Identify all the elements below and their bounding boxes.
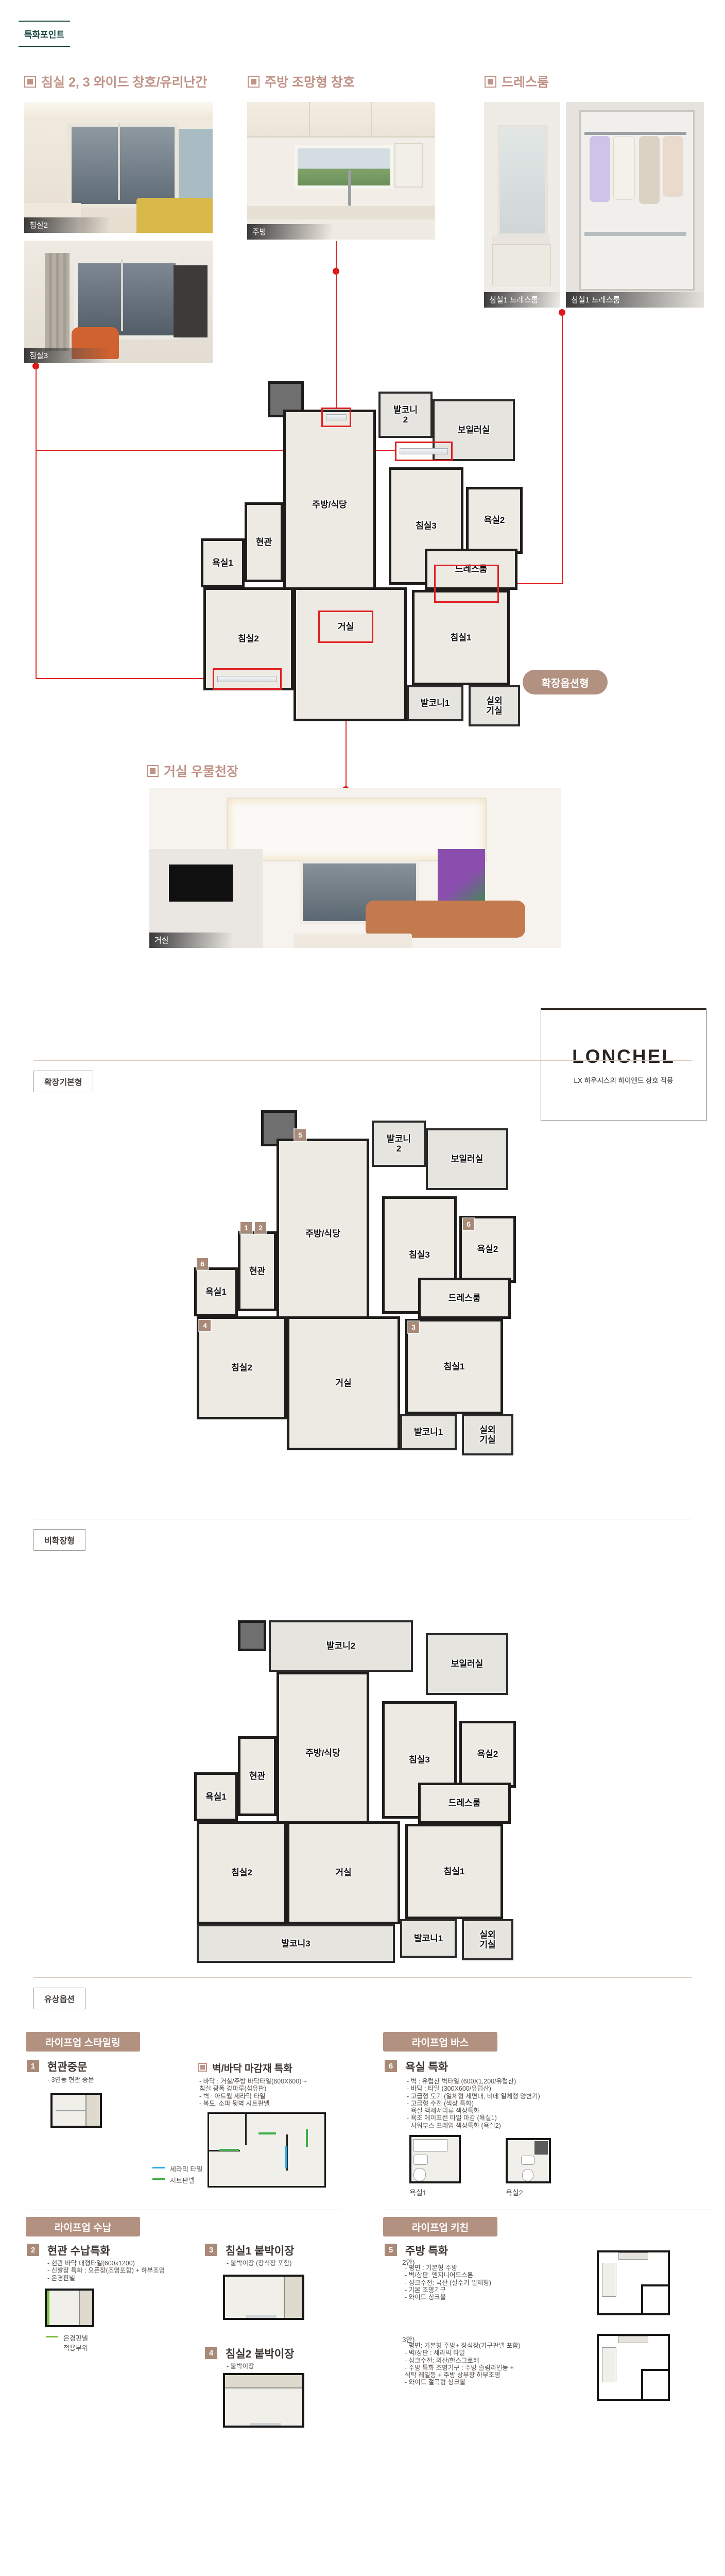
room-balcony2: 발코니2	[378, 392, 433, 438]
room-balcony1: 발코니1	[400, 1919, 457, 1958]
option-number-5: 5	[385, 2244, 397, 2256]
room-outdoor-unit: 실외기실	[462, 1919, 513, 1960]
diagram-wardrobe-band	[225, 2375, 302, 2388]
room-balcony2: 발코니2	[269, 1620, 413, 1672]
photo-caption: 침실1 드레스룸	[484, 292, 560, 308]
diagram-l-notch	[641, 2369, 670, 2401]
window-graphic	[400, 448, 448, 454]
room-balcony1: 발코니1	[407, 685, 463, 721]
diagram-bed2-wardrobe	[223, 2373, 304, 2428]
diagram-counter	[602, 2263, 616, 2297]
diagram-door-line	[56, 2110, 85, 2111]
room-kitchen: 주방/식당	[277, 1139, 369, 1329]
photo-decor-sofa	[366, 901, 525, 938]
highlight-living-label: 거실	[318, 611, 373, 643]
legend-ceramic-tile: 세라믹 타일	[152, 2164, 202, 2174]
option-bullets-door: - 3연동 현관 중문	[47, 2076, 94, 2083]
photo-caption: 침실3	[24, 348, 109, 363]
diagram-closet-band	[79, 2291, 92, 2325]
legend-sheet-panel: 시트판넬	[152, 2175, 195, 2185]
highlight-bed2-window	[213, 668, 282, 690]
dressroom-photo-1: 침실1 드레스룸	[484, 102, 560, 308]
photo-caption: 거실	[149, 933, 232, 948]
room-living	[294, 587, 407, 721]
option-tag-3: 3	[408, 1321, 419, 1333]
diagram-green-segment	[306, 2129, 308, 2147]
option-number-4: 4	[205, 2347, 217, 2359]
room-balcony1: 발코니1	[400, 1414, 457, 1450]
photo-decor-clothes	[590, 136, 610, 202]
diagram-entrance-door	[50, 2093, 102, 2128]
option-bullets-bed1-wardrobe: - 붙박이장 (장식장 포함)	[227, 2260, 291, 2267]
option-item-bath: 6 욕실 특화	[385, 2059, 448, 2074]
diagram-entrance-storage	[45, 2289, 94, 2327]
pill-lifeup-kitchen: 라이프업 키친	[383, 2217, 497, 2236]
floorplan-extended-basic: 발코니2 보일러실 주방/식당 침실3 욕실2 현관 욕실1 드레스룸 침실2 …	[192, 1108, 526, 1463]
option-item-kitchen: 5 주방 특화	[385, 2243, 448, 2258]
column-divider	[383, 2210, 715, 2210]
diagram-l-notch	[641, 2284, 670, 2315]
room-balcony3: 발코니3	[197, 1924, 395, 1963]
option-bullets-finish: - 바닥 : 거실/주방 바닥타일(600X600) + 침실 광폭 강마루(섬…	[199, 2078, 307, 2107]
room-entrance: 현관	[238, 1736, 277, 1816]
legend-swatch-lime	[46, 2336, 58, 2337]
diagram-green-segment	[219, 2149, 239, 2151]
red-connector-line	[562, 312, 563, 584]
photo-decor-cabinet-line	[371, 102, 372, 136]
option-item-door: 1 현관중문	[27, 2059, 87, 2074]
option-number-3: 3	[205, 2244, 217, 2256]
bedroom2-photo: 침실2	[24, 102, 213, 233]
room-bed1: 침실1	[405, 1824, 503, 1919]
living-room-photo: 거실	[149, 788, 561, 948]
square-bullet-icon	[485, 76, 496, 88]
diagram-green-segment	[258, 2132, 276, 2134]
red-connector-line	[36, 367, 37, 679]
pill-lifeup-storage: 라이프업 수납	[26, 2217, 140, 2236]
legend-swatch-green	[152, 2178, 165, 2180]
diagram-sink	[413, 2155, 428, 2165]
kitchen-photo: 주방	[247, 102, 435, 240]
option-item-entrance-storage: 2 현관 수납특화	[27, 2243, 110, 2258]
legend-mirror-panel: 은경판넬 적용부위	[46, 2333, 88, 2352]
header-dressroom: 드레스룸	[485, 72, 549, 91]
photo-decor-shelf	[174, 265, 208, 337]
photo-decor-bed	[136, 198, 213, 233]
diagram-toilet	[522, 2169, 533, 2181]
diagram-lime-accent	[47, 2291, 49, 2325]
option-item-bed2-wardrobe: 4 침실2 붙박이장	[205, 2346, 294, 2361]
square-bullet-icon	[248, 76, 260, 88]
photo-decor-counter	[247, 206, 435, 219]
lonchel-logo-box: LONCHEL LX 하우시스의 하이엔드 창호 적용	[541, 1008, 706, 1121]
photo-caption: 주방	[247, 224, 332, 240]
photo-decor-clothes	[613, 136, 635, 200]
room-duct	[238, 1620, 266, 1651]
room-outdoor-unit: 실외기실	[462, 1414, 513, 1455]
brochure-page: 특화포인트 침실 2, 3 와이드 창호/유리난간 주방 조망형 창호 드레스룸…	[0, 0, 725, 2576]
photo-decor-counter	[492, 235, 550, 244]
photo-decor-window-mullion	[118, 123, 120, 200]
room-dress: 드레스룸	[418, 1278, 511, 1319]
diagram-window	[250, 2423, 281, 2426]
window-graphic	[326, 414, 347, 420]
section-divider	[33, 1519, 692, 1519]
option-bullets-bed2-wardrobe: - 붙박이장	[227, 2363, 254, 2370]
diagram-sink	[521, 2156, 534, 2165]
square-bullet-icon	[24, 76, 36, 88]
header-living-ceiling: 거실 우물천장	[147, 761, 238, 780]
option-tag-5: 5	[295, 1129, 306, 1141]
square-bullet-icon	[147, 765, 159, 777]
section-divider	[33, 1977, 692, 1978]
option-tag-1: 1	[240, 1222, 252, 1233]
room-bed1: 침실1	[412, 590, 510, 685]
room-outdoor-unit: 실외기실	[469, 685, 520, 726]
photo-decor-drawers	[492, 244, 551, 285]
pill-lifeup-bath: 라이프업 바스	[383, 2032, 497, 2052]
photo-decor-ceiling	[24, 102, 213, 120]
room-living: 거실	[287, 1316, 400, 1450]
diagram-window	[246, 2315, 277, 2318]
option-number-1: 1	[27, 2060, 39, 2072]
option-bullets-kitchen-plan3: - 평면: 기본형 주방+ 장식장(가구판넬 포함) - 벽/상판 : 세라믹 …	[405, 2342, 521, 2386]
photo-decor-artwork	[438, 849, 485, 907]
window-graphic	[217, 676, 277, 682]
diagram-bath1	[409, 2135, 461, 2183]
dressroom-photo-2: 침실1 드레스룸	[566, 102, 704, 308]
option-number-6: 6	[385, 2060, 397, 2072]
room-bath2: 욕실2	[466, 487, 523, 554]
option-bullets-bath: - 벽 : 유럽산 벽타일 (600X1,200/유럽산) - 바닥 : 타일 …	[407, 2078, 540, 2129]
room-entrance: 현관	[245, 502, 283, 582]
diagram-finish-plan	[208, 2112, 326, 2188]
photo-decor-mirror	[497, 125, 548, 236]
diagram-counter	[602, 2347, 616, 2382]
section-label-special-points: 특화포인트	[19, 21, 70, 47]
photo-decor-cabinet-door	[394, 143, 423, 188]
photo-caption: 침실1 드레스룸	[566, 292, 704, 308]
diagram-kitchen-plan3	[597, 2334, 670, 2401]
photo-decor-cabinets	[247, 102, 435, 138]
diagram-bed1-wardrobe	[223, 2275, 304, 2320]
red-connector-line	[36, 678, 213, 679]
pill-lifeup-styling: 라이프업 스타일링	[26, 2032, 140, 2052]
label-non-extended: 비확장형	[33, 1529, 85, 1551]
legend-swatch-blue	[152, 2167, 165, 2168]
room-bath2: 욕실2	[459, 1721, 516, 1788]
diagram-closet-band	[85, 2095, 100, 2126]
diagram-bathtub	[413, 2139, 447, 2151]
photo-decor-accent-wall	[179, 129, 213, 206]
option-item-bed1-wardrobe: 3 침실1 붙박이장	[205, 2243, 294, 2258]
photo-decor-rug	[294, 934, 412, 948]
diagram-hood	[618, 2252, 648, 2260]
column-divider	[26, 2210, 340, 2210]
square-bullet-icon	[198, 2063, 207, 2072]
diagram-wall	[245, 2114, 247, 2145]
highlight-kitchen-window	[321, 408, 351, 427]
photo-caption: 침실2	[24, 217, 109, 233]
photo-decor-rail	[584, 132, 686, 135]
room-boiler: 보일러실	[426, 1633, 508, 1695]
diagram-blue-segment	[285, 2146, 287, 2168]
option-tag-4: 4	[199, 1320, 211, 1331]
option-bullets-kitchen-plan2: - 평면 : 기본형 주방 - 벽/상판: 엔지니어드스톤 - 싱크수전: 국산…	[405, 2264, 491, 2301]
header-kitchen-window: 주방 조망형 창호	[248, 72, 355, 91]
diagram-wardrobe-band	[284, 2277, 302, 2318]
lonchel-tagline: LX 하우시스의 하이엔드 창호 적용	[574, 1075, 674, 1085]
label-extended-basic: 확장기본형	[33, 1071, 93, 1092]
diagram-bath2	[506, 2138, 551, 2183]
diagram-shower-duct	[534, 2141, 548, 2155]
option-item-finish: 벽/바닥 마감재 특화	[198, 2061, 292, 2075]
photo-decor-curtain	[45, 253, 70, 351]
room-bed2: 침실2	[197, 1316, 287, 1419]
photo-decor-window	[67, 123, 179, 208]
diagram-caption-bath1: 욕실1	[409, 2188, 427, 2198]
diagram-hood	[618, 2336, 648, 2343]
diagram-kitchen-plan2	[597, 2250, 670, 2315]
photo-decor-faucet	[348, 170, 351, 206]
room-kitchen: 주방/식당	[277, 1672, 369, 1834]
floorplan-non-extended: 발코니2 보일러실 주방/식당 침실3 욕실2 현관 욕실1 드레스룸 침실2 …	[192, 1613, 526, 1968]
room-dress: 드레스룸	[418, 1783, 511, 1824]
diagram-toilet	[413, 2168, 426, 2181]
option-tag-6: 6	[463, 1218, 474, 1230]
highlight-bed3-window	[395, 442, 453, 461]
room-bath1: 욕실1	[194, 1267, 238, 1316]
room-boiler: 보일러실	[426, 1128, 508, 1190]
label-paid-options: 유상옵션	[33, 1988, 85, 2009]
highlight-dressroom	[434, 565, 499, 603]
photo-decor-clothes	[639, 136, 660, 204]
room-balcony2: 발코니2	[372, 1121, 426, 1167]
option-tag-6: 6	[197, 1258, 208, 1269]
bedroom3-photo: 침실3	[24, 241, 213, 363]
photo-decor-window-mullion	[121, 259, 123, 331]
photo-decor-tv	[169, 865, 233, 902]
option-tag-2: 2	[255, 1222, 266, 1233]
badge-extended-option: 확장옵션형	[523, 670, 608, 694]
section-divider	[33, 1060, 692, 1061]
room-bed1: 침실1	[405, 1319, 503, 1414]
photo-decor-clothes	[663, 136, 683, 197]
photo-decor-shelf	[584, 232, 686, 236]
option-bullets-entrance-storage: - 현관 바닥 대형타일(600x1200) - 신발장 특화 : 오픈장(조명…	[47, 2260, 165, 2282]
option-number-2: 2	[27, 2244, 39, 2256]
room-living: 거실	[287, 1821, 400, 1924]
room-bath1: 욕실1	[194, 1772, 238, 1821]
room-bed2: 침실2	[197, 1821, 287, 1924]
photo-decor-cabinet-line	[309, 102, 310, 136]
photo-decor-view-window	[295, 145, 393, 189]
diagram-caption-bath2: 욕실2	[506, 2188, 523, 2198]
header-bedroom-windows: 침실 2, 3 와이드 창호/유리난간	[24, 72, 207, 91]
lonchel-logotype: LONCHEL	[572, 1046, 675, 1067]
room-kitchen: 주방/식당	[283, 410, 376, 600]
room-entrance: 현관	[238, 1231, 277, 1311]
room-bath1: 욕실1	[201, 538, 245, 587]
